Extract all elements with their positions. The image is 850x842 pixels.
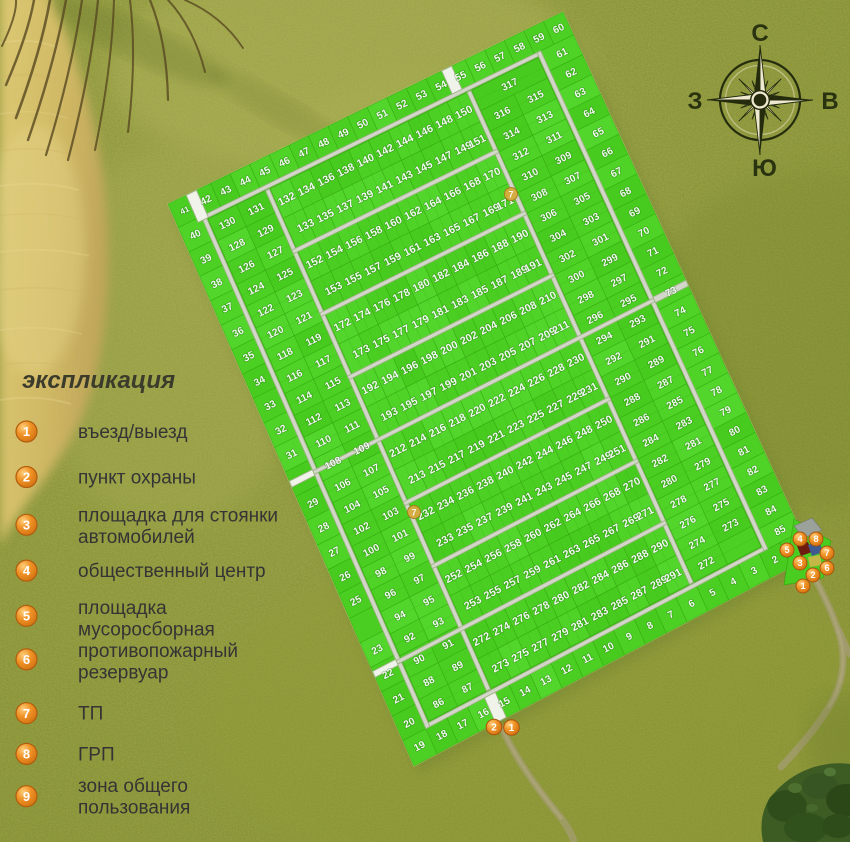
svg-text:5: 5 xyxy=(784,545,789,555)
svg-text:экспликация: экспликация xyxy=(22,367,175,394)
svg-text:6: 6 xyxy=(23,652,30,667)
svg-text:8: 8 xyxy=(813,534,818,544)
svg-text:пользования: пользования xyxy=(78,798,190,819)
svg-text:мусоросборная: мусоросборная xyxy=(78,620,215,641)
svg-text:5: 5 xyxy=(23,609,30,624)
svg-text:4: 4 xyxy=(797,534,803,544)
svg-text:З: З xyxy=(687,88,702,115)
svg-text:зона общего: зона общего xyxy=(78,776,188,797)
svg-text:въезд/выезд: въезд/выезд xyxy=(78,422,187,443)
svg-text:3: 3 xyxy=(23,517,30,532)
svg-text:4: 4 xyxy=(23,563,31,578)
svg-text:ГРП: ГРП xyxy=(78,744,115,765)
svg-text:7: 7 xyxy=(23,706,30,721)
svg-text:3: 3 xyxy=(797,558,802,568)
svg-text:ТП: ТП xyxy=(78,704,103,725)
svg-text:7: 7 xyxy=(824,548,829,558)
svg-text:8: 8 xyxy=(23,747,30,762)
svg-text:7: 7 xyxy=(411,508,416,518)
svg-text:1: 1 xyxy=(23,424,30,439)
svg-text:1: 1 xyxy=(800,581,805,591)
svg-text:В: В xyxy=(821,88,838,115)
svg-text:площадка для стоянки: площадка для стоянки xyxy=(78,506,278,527)
svg-text:Ю: Ю xyxy=(752,155,777,182)
svg-text:2: 2 xyxy=(810,570,815,580)
svg-text:автомобилей: автомобилей xyxy=(78,527,195,548)
svg-text:9: 9 xyxy=(23,789,30,804)
svg-text:общественный центр: общественный центр xyxy=(78,561,266,582)
svg-text:2: 2 xyxy=(23,470,30,485)
svg-text:площадка: площадка xyxy=(78,598,167,619)
svg-text:С: С xyxy=(751,20,768,47)
svg-text:2: 2 xyxy=(491,723,497,734)
svg-text:резервуар: резервуар xyxy=(78,663,168,684)
svg-text:7: 7 xyxy=(508,190,513,200)
svg-text:6: 6 xyxy=(824,563,829,573)
svg-text:1: 1 xyxy=(509,723,515,734)
svg-text:противопожарный: противопожарный xyxy=(78,641,238,662)
svg-text:пункт охраны: пункт охраны xyxy=(78,468,196,489)
